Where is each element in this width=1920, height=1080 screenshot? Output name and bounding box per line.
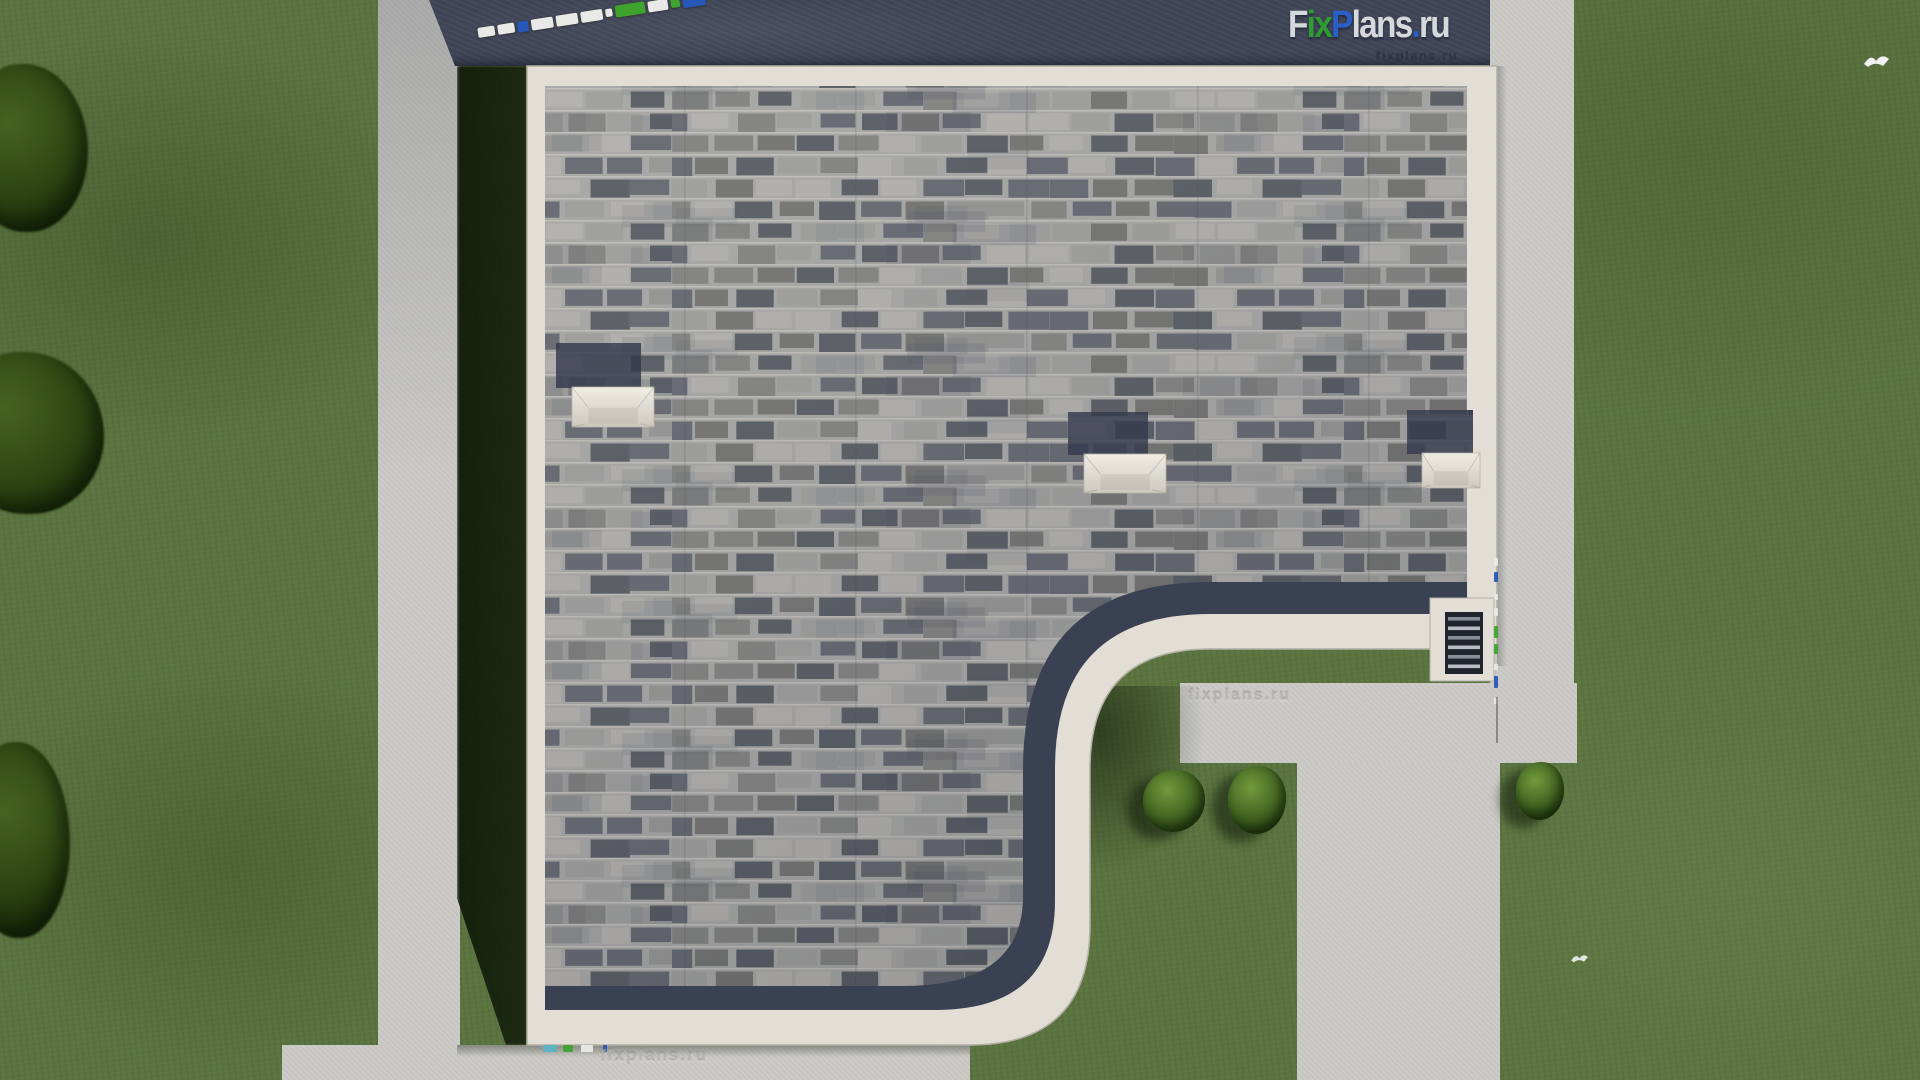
watermark-under-logo: fixplans.ru — [1376, 48, 1458, 63]
edge-marker — [1494, 664, 1498, 670]
bottom-marker — [581, 1045, 593, 1052]
house-roof — [0, 0, 1920, 1080]
logo-part: . — [1411, 4, 1419, 46]
edge-marker — [1494, 608, 1498, 616]
edge-marker — [1494, 676, 1498, 688]
bird — [1570, 952, 1590, 966]
edge-marker-strip — [1494, 558, 1499, 704]
roof-hatch-vent — [1430, 598, 1494, 681]
roof-light-shade-overlay — [545, 86, 1467, 986]
logo-part: ru — [1419, 4, 1449, 46]
eave-seam-line — [1496, 697, 1498, 743]
bottom-marker — [543, 1045, 557, 1052]
logo-part: P — [1331, 4, 1352, 46]
edge-marker — [1494, 626, 1498, 638]
watermark-bottom-path: fixplans.ru — [600, 1046, 708, 1066]
edge-marker — [1494, 558, 1498, 566]
bottom-marker — [563, 1045, 573, 1052]
logo-part: lans — [1352, 4, 1412, 46]
edge-marker — [1494, 572, 1498, 582]
site-logo: FixPlans.ru — [1288, 4, 1449, 47]
bird — [1862, 52, 1892, 72]
edge-marker — [1494, 644, 1498, 654]
edge-marker — [1494, 594, 1498, 600]
logo-part: ix — [1307, 4, 1331, 46]
logo-part: F — [1288, 4, 1307, 46]
aerial-house-render: fixplans.ru fixplans.ru fixplans.ru FixP… — [0, 0, 1920, 1080]
watermark-walkway: fixplans.ru — [1188, 687, 1291, 705]
